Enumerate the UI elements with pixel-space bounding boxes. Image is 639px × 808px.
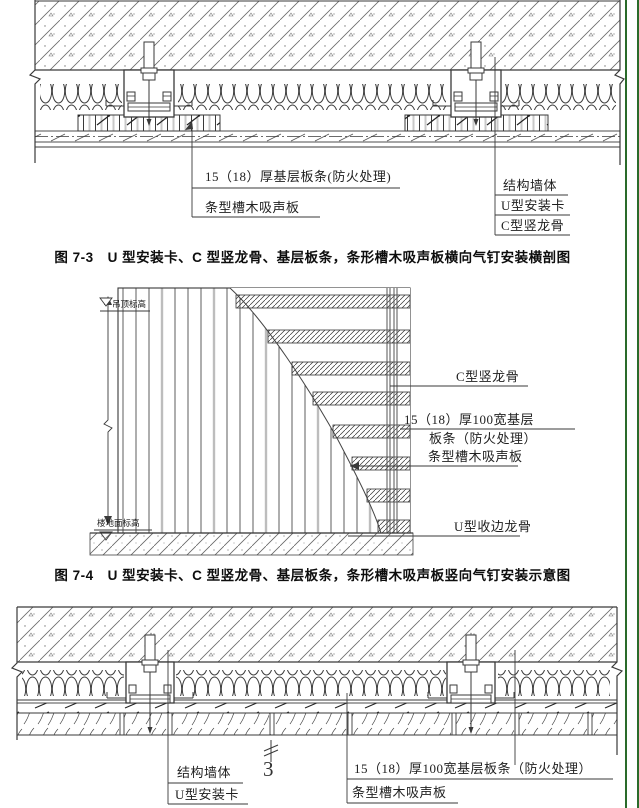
base-board-layer — [17, 700, 617, 713]
page-border-green-inner — [625, 0, 627, 808]
label-acoustic-panel-fig1: 条型槽木吸声板 — [205, 201, 300, 215]
page: 15（18）厚基层板条(防火处理) 条型槽木吸声板 结构墙体 U型安装卡 C型竖… — [0, 0, 639, 808]
label-u-clip-fig1: U型安装卡 — [501, 199, 565, 213]
concrete-wall-hatch — [35, 1, 620, 70]
figure-7-3-caption: 图 7-3 U 型安装卡、C 型竖龙骨、基层板条，条形槽木吸声板横向气钉安装横剖… — [0, 246, 625, 266]
label-ceiling-level: 吊顶标高 — [112, 300, 146, 309]
label-acoustic-panel-fig3: 条型槽木吸声板 — [352, 786, 447, 800]
label-floor-level: 楼地面标高 — [97, 519, 140, 528]
concrete-wall-hatch — [17, 607, 617, 662]
figure-bottom-drawing — [0, 600, 625, 808]
acoustic-slat-board — [17, 713, 617, 735]
label-structural-wall-fig3: 结构墙体 — [177, 766, 231, 780]
label-base-strip-fig3: 15（18）厚100宽基层板条（防火处理） — [354, 762, 592, 776]
figure-7-4-caption: 图 7-4 U 型安装卡、C 型竖龙骨、基层板条，条形槽木吸声板竖向气钉安装示意… — [0, 564, 625, 584]
label-u-edge-keel-fig2: U型收边龙骨 — [454, 520, 531, 534]
label-base-strip-line1-fig2: 15（18）厚100宽基层 — [404, 413, 534, 427]
label-base-strip-line2-fig2: 板条（防火处理） — [429, 432, 537, 446]
base-board-layer — [35, 131, 620, 147]
insulation-batt — [22, 670, 610, 696]
label-u-clip-fig3: U型安装卡 — [175, 788, 239, 802]
label-c-keel-fig1: C型竖龙骨 — [501, 219, 564, 233]
label-c-keel-fig2: C型竖龙骨 — [456, 370, 519, 384]
label-structural-wall-fig1: 结构墙体 — [503, 179, 557, 193]
label-base-strip-fig1: 15（18）厚基层板条(防火处理) — [205, 170, 391, 184]
label-acoustic-panel-fig2: 条型槽木吸声板 — [428, 450, 523, 464]
keynote-number: 3 — [263, 757, 274, 782]
